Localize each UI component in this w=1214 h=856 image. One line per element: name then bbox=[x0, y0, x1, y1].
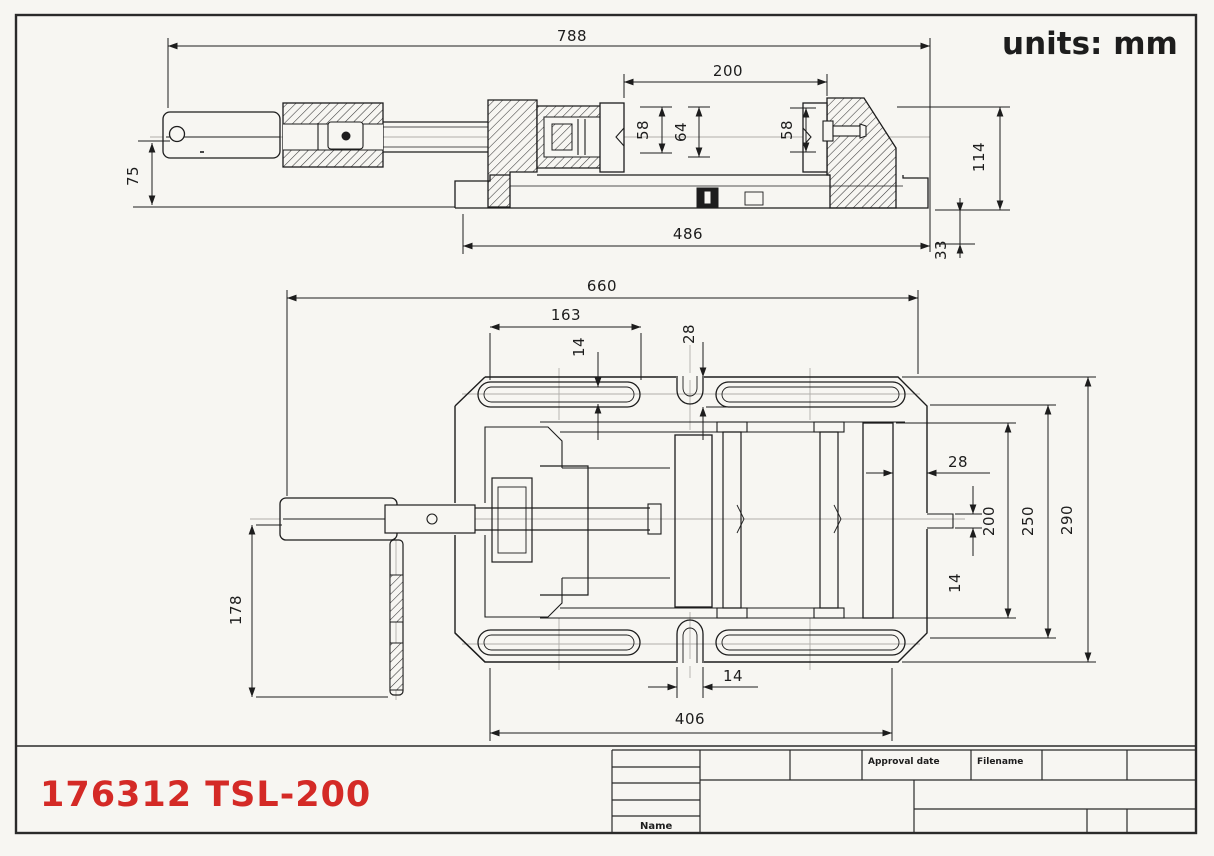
units-note: units: mm bbox=[1002, 26, 1178, 62]
inner-cavity bbox=[485, 422, 905, 618]
knurl-band-1 bbox=[390, 575, 403, 622]
dim-75: 75 bbox=[124, 166, 142, 186]
knurl-band-2 bbox=[390, 643, 403, 690]
filename-label: Filename bbox=[977, 757, 1023, 767]
jaw-bolt bbox=[823, 121, 833, 141]
dim-178: 178 bbox=[227, 595, 245, 625]
dim-406: 406 bbox=[675, 710, 705, 728]
dim-114: 114 bbox=[970, 142, 988, 172]
plan-view bbox=[280, 373, 953, 695]
screw-collar bbox=[283, 103, 383, 167]
plan-handle bbox=[280, 498, 475, 695]
approval-date-label: Approval date bbox=[868, 757, 940, 767]
dim-290: 290 bbox=[1058, 505, 1076, 535]
dim-64: 64 bbox=[672, 122, 690, 142]
fixed-jaw bbox=[803, 98, 896, 208]
name-label: Name bbox=[640, 821, 673, 832]
drawing-sheet: Approval date Filename Name units: mm 17… bbox=[0, 0, 1214, 856]
handle-hole bbox=[170, 127, 185, 142]
dim-163: 163 bbox=[551, 306, 581, 324]
dim-58-right: 58 bbox=[778, 120, 796, 140]
dim-14-bottom: 14 bbox=[723, 667, 743, 685]
dim-28-top: 28 bbox=[680, 324, 698, 344]
dim-14-top: 14 bbox=[570, 337, 588, 357]
movable-jaw-plate-plan bbox=[675, 435, 712, 607]
side-view bbox=[133, 98, 928, 208]
dim-486: 486 bbox=[673, 225, 703, 243]
vise-technical-drawing: Approval date Filename Name units: mm 17… bbox=[0, 0, 1214, 856]
base bbox=[133, 175, 928, 208]
dim-58-left: 58 bbox=[634, 120, 652, 140]
centerlines bbox=[150, 137, 965, 700]
dim-14-right: 14 bbox=[946, 573, 964, 593]
dim-200-plan: 200 bbox=[980, 506, 998, 536]
part-number-label: 176312 TSL-200 bbox=[40, 775, 371, 815]
dim-250: 250 bbox=[1019, 506, 1037, 536]
fixed-jaw-plate-plan bbox=[863, 423, 893, 618]
dim-200-side: 200 bbox=[713, 62, 743, 80]
plan-screw-and-jaws bbox=[475, 422, 953, 618]
dim-660: 660 bbox=[587, 277, 617, 295]
movable-jaw bbox=[488, 100, 624, 207]
dim-28-right: 28 bbox=[948, 453, 968, 471]
key-tab bbox=[927, 514, 953, 528]
dim-788: 788 bbox=[557, 27, 587, 45]
dim-33: 33 bbox=[932, 240, 950, 260]
movable-jaw-plate bbox=[600, 103, 624, 172]
